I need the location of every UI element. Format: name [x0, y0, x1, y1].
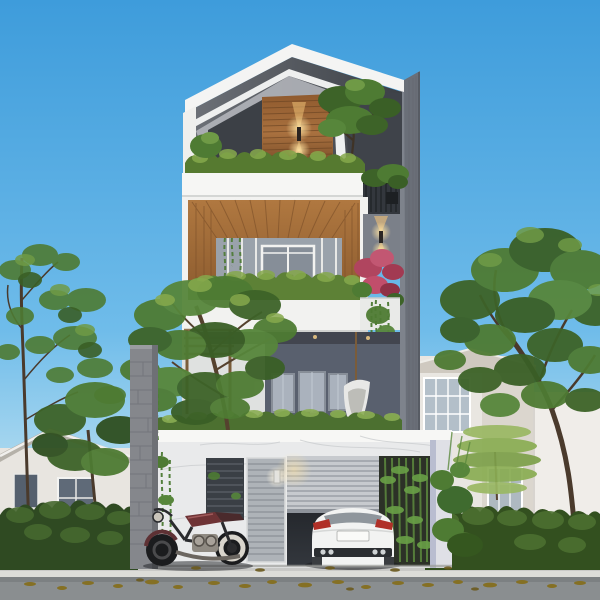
- motorcycle: [143, 509, 253, 571]
- car-license-plate: [337, 531, 369, 541]
- column-wall-lamp: [379, 231, 383, 243]
- curb: [0, 571, 600, 577]
- side-tower: [400, 71, 420, 432]
- terrace-wall-lamp: [297, 127, 301, 141]
- rooftop-unit: [386, 192, 398, 204]
- garage: [276, 452, 433, 570]
- car: [305, 508, 401, 570]
- garage-roller-door: [276, 452, 379, 513]
- car-diffuser: [314, 548, 392, 557]
- scene-canvas: [0, 0, 600, 600]
- upper-slab: [182, 173, 368, 197]
- moto-headlamp: [153, 512, 163, 522]
- entry-louver-dark: [206, 458, 244, 520]
- render-viewport: [0, 0, 600, 600]
- left-hedge: [0, 500, 138, 570]
